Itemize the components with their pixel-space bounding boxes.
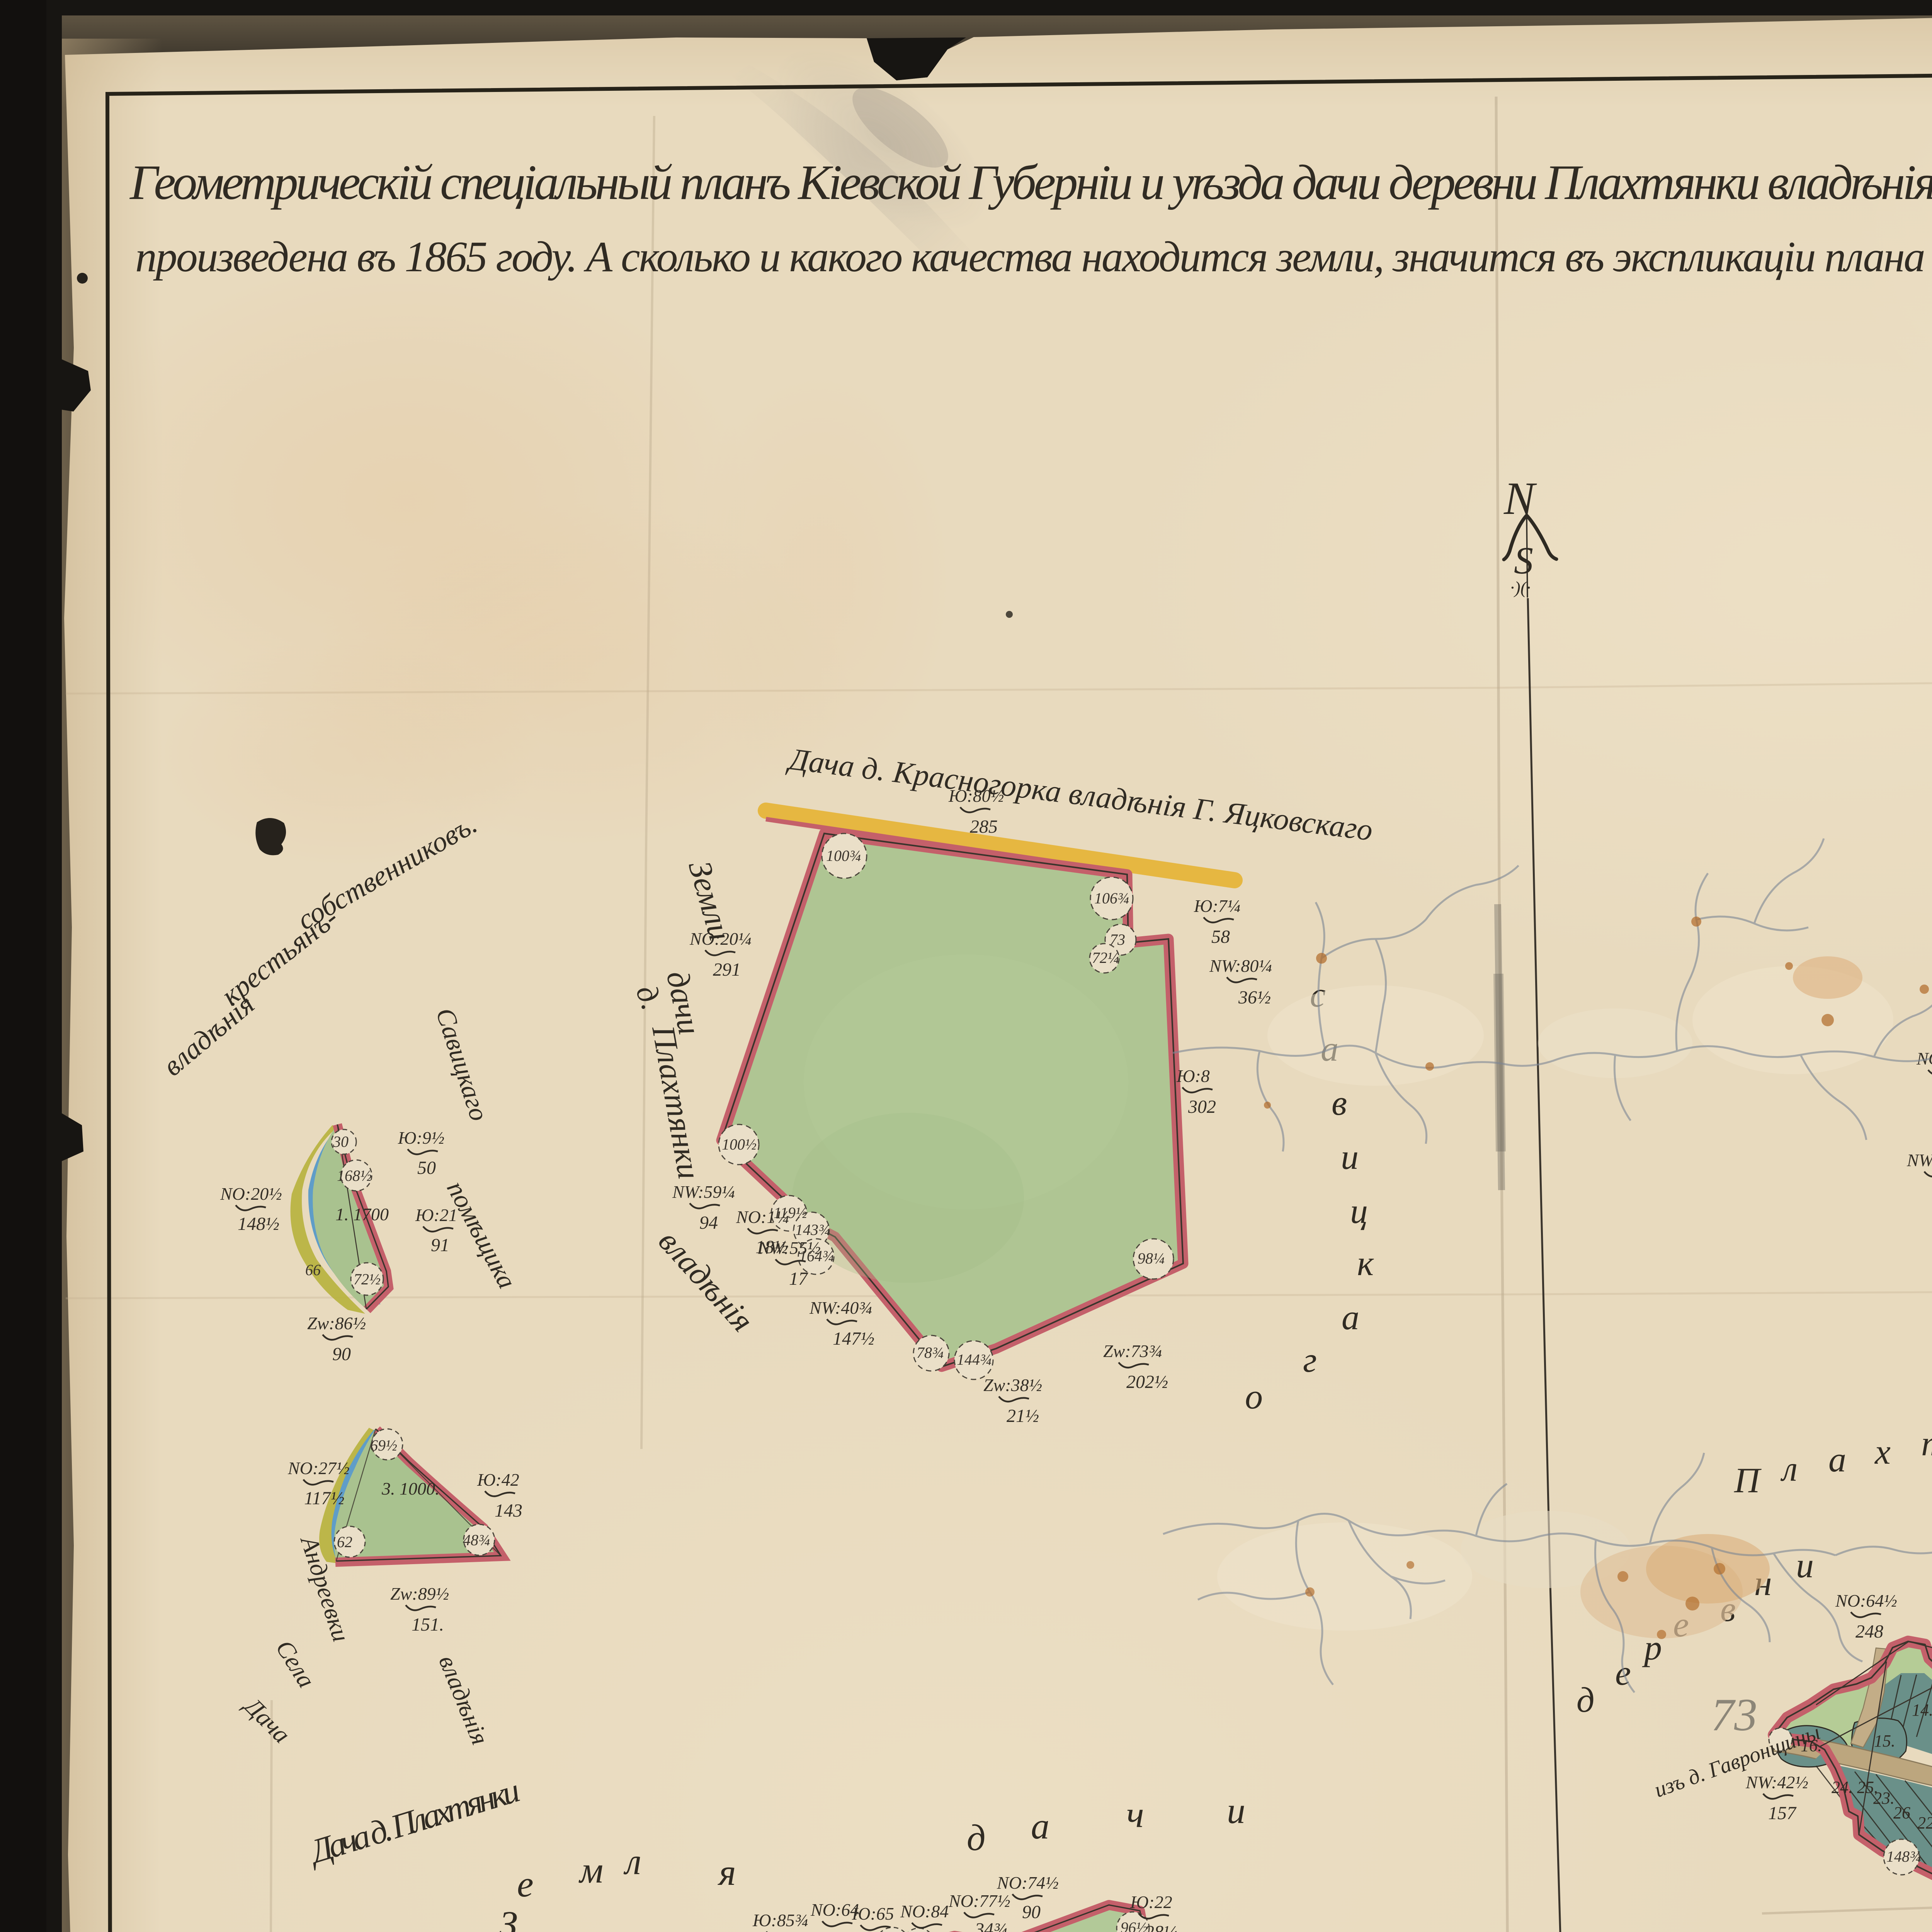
svg-text:50: 50 <box>417 1158 436 1178</box>
svg-text:148¾: 148¾ <box>1886 1848 1921 1865</box>
svg-text:д: д <box>967 1817 986 1858</box>
svg-text:100½: 100½ <box>722 1136 757 1153</box>
svg-text:Ю:9½: Ю:9½ <box>398 1128 444 1148</box>
svg-text:и: и <box>1227 1790 1245 1831</box>
svg-text:Zw:38½: Zw:38½ <box>983 1375 1042 1395</box>
svg-text:62: 62 <box>337 1533 352 1551</box>
svg-text:е: е <box>517 1863 534 1905</box>
svg-text:90: 90 <box>1022 1902 1041 1922</box>
svg-text:36½: 36½ <box>1238 987 1271 1008</box>
svg-text:NO:84: NO:84 <box>900 1901 949 1921</box>
svg-text:к: к <box>1357 1243 1374 1283</box>
svg-text:а: а <box>1031 1805 1049 1847</box>
svg-text:73: 73 <box>1110 931 1125 948</box>
svg-text:т: т <box>1921 1423 1932 1463</box>
svg-text:NO:74½: NO:74½ <box>997 1873 1059 1893</box>
svg-text:л: л <box>1780 1449 1798 1488</box>
svg-text:NW:40½: NW:40½ <box>1906 1150 1932 1170</box>
svg-text:N: N <box>1503 473 1537 524</box>
svg-text:д: д <box>1577 1680 1595 1719</box>
svg-text:148½: 148½ <box>238 1214 279 1234</box>
svg-text:NW:42½: NW:42½ <box>1745 1772 1808 1792</box>
svg-text:58: 58 <box>1211 927 1230 947</box>
svg-text:о: о <box>1245 1377 1263 1416</box>
svg-text:произведена въ 1865 году. А ск: произведена въ 1865 году. А сколько и ка… <box>135 233 1932 281</box>
svg-text:NO:1¼: NO:1¼ <box>736 1207 789 1227</box>
svg-text:72¼: 72¼ <box>1092 949 1119 966</box>
svg-text:NO:77½: NO:77½ <box>948 1891 1010 1911</box>
svg-text:NO:64½: NO:64½ <box>1835 1591 1897 1611</box>
svg-text:72½: 72½ <box>354 1270 381 1288</box>
svg-text:Ю:8: Ю:8 <box>1176 1066 1210 1086</box>
svg-text:96½: 96½ <box>1121 1919 1148 1932</box>
svg-text:Ю:65: Ю:65 <box>852 1904 894 1923</box>
svg-text:1. 1700: 1. 1700 <box>335 1204 389 1224</box>
svg-text:143¾: 143¾ <box>795 1221 830 1238</box>
svg-text:151.: 151. <box>412 1614 444 1635</box>
svg-text:24. 25.: 24. 25. <box>1832 1778 1878 1797</box>
svg-text:NO:27½: NO:27½ <box>287 1458 350 1478</box>
svg-text:Zw:73¾: Zw:73¾ <box>1103 1341 1162 1361</box>
svg-text:Ю:42: Ю:42 <box>477 1470 519 1490</box>
svg-text:Ю:85¾: Ю:85¾ <box>752 1910 808 1930</box>
svg-text:291: 291 <box>713 959 741 980</box>
svg-text:Ю:7¼: Ю:7¼ <box>1194 896 1240 916</box>
svg-text:и: и <box>1341 1137 1359 1177</box>
svg-text:84: 84 <box>918 1930 936 1932</box>
svg-text:147½: 147½ <box>833 1328 874 1349</box>
svg-text:94: 94 <box>699 1213 718 1233</box>
svg-text:S: S <box>1514 539 1533 582</box>
svg-text:285: 285 <box>970 816 998 837</box>
svg-text:22: 22 <box>1917 1813 1932 1832</box>
svg-text:л: л <box>623 1841 641 1882</box>
svg-text:г: г <box>1303 1340 1317 1379</box>
svg-text:98¼: 98¼ <box>1138 1250 1165 1267</box>
svg-text:168½: 168½ <box>337 1167 372 1184</box>
svg-text:я: я <box>718 1852 736 1893</box>
svg-text:69½: 69½ <box>370 1437 397 1454</box>
svg-text:NW:80¼: NW:80¼ <box>1209 956 1272 976</box>
svg-text:·)(·: ·)(· <box>1510 578 1531 597</box>
svg-text:28¼: 28¼ <box>1145 1922 1177 1932</box>
svg-text:и: и <box>1796 1546 1814 1585</box>
svg-text:м: м <box>578 1849 603 1891</box>
svg-text:Zw:89½: Zw:89½ <box>390 1584 449 1604</box>
svg-text:П: П <box>1734 1461 1762 1500</box>
svg-text:30: 30 <box>333 1133 349 1150</box>
svg-text:202½: 202½ <box>1126 1372 1168 1392</box>
svg-text:26: 26 <box>1893 1803 1910 1822</box>
svg-text:48¾: 48¾ <box>463 1531 490 1549</box>
svg-text:NW:55½: NW:55½ <box>758 1238 821 1258</box>
svg-text:NO:20½: NO:20½ <box>220 1184 282 1204</box>
svg-text:21½: 21½ <box>1007 1406 1039 1426</box>
svg-text:14.: 14. <box>1912 1701 1932 1719</box>
svg-text:Zw:86½: Zw:86½ <box>307 1313 366 1333</box>
svg-text:ч: ч <box>1126 1794 1144 1835</box>
svg-text:66: 66 <box>305 1261 321 1279</box>
svg-text:а: а <box>1342 1298 1359 1337</box>
svg-text:90: 90 <box>332 1344 351 1364</box>
svg-text:143: 143 <box>495 1500 522 1521</box>
svg-text:3. 1000.: 3. 1000. <box>381 1479 440 1498</box>
svg-text:73: 73 <box>1711 1689 1757 1740</box>
svg-text:х: х <box>1874 1432 1891 1471</box>
svg-text:248: 248 <box>1855 1621 1883 1642</box>
svg-text:NW:40¾: NW:40¾ <box>809 1298 872 1318</box>
svg-text:106¾: 106¾ <box>1094 889 1129 907</box>
svg-text:100¾: 100¾ <box>826 847 861 864</box>
svg-text:NW:59¼: NW:59¼ <box>672 1182 735 1202</box>
svg-text:Ю:22: Ю:22 <box>1130 1892 1172 1912</box>
svg-text:ц: ц <box>1350 1191 1368 1231</box>
svg-text:NO:69½: NO:69½ <box>688 1929 750 1932</box>
svg-text:302: 302 <box>1188 1097 1216 1117</box>
svg-text:34¾: 34¾ <box>975 1919 1007 1932</box>
svg-text:15.: 15. <box>1874 1731 1895 1750</box>
svg-text:144¾: 144¾ <box>957 1351 992 1368</box>
svg-text:23.: 23. <box>1873 1789 1895 1808</box>
svg-text:18½: 18½ <box>822 1928 855 1932</box>
svg-text:Ю:21: Ю:21 <box>415 1205 457 1225</box>
svg-text:в: в <box>1332 1083 1347 1122</box>
svg-text:157: 157 <box>1768 1803 1797 1823</box>
svg-text:117½: 117½ <box>304 1488 344 1509</box>
svg-text:78¾: 78¾ <box>917 1344 944 1361</box>
svg-text:17: 17 <box>789 1269 808 1289</box>
svg-text:Геометрическій спеціальный пла: Геометрическій спеціальный планъ Кіевско… <box>129 155 1932 210</box>
svg-text:З: З <box>499 1903 518 1932</box>
svg-text:а: а <box>1828 1440 1846 1479</box>
svg-text:91: 91 <box>431 1235 449 1255</box>
